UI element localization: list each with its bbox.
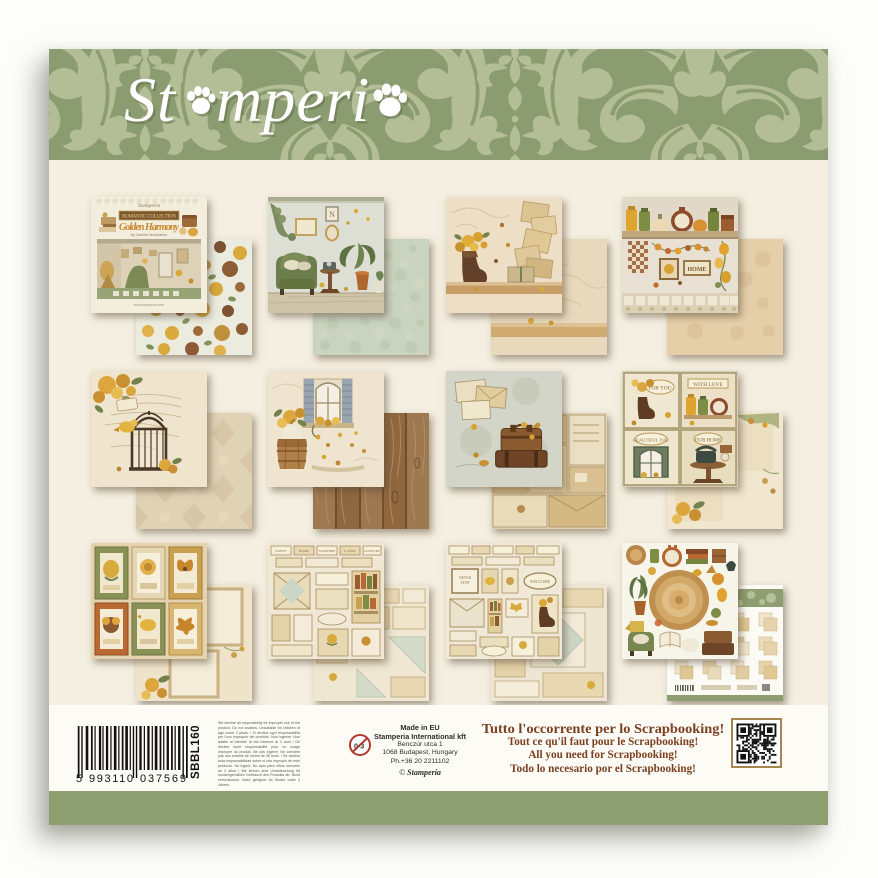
svg-text:www.stamperia.com: www.stamperia.com (134, 303, 165, 307)
svg-text:ROMANTIC COLLECTION: ROMANTIC COLLECTION (122, 214, 176, 220)
svg-text:WELCOME: WELCOME (530, 579, 551, 584)
svg-text:SUNSHINE: SUNSHINE (319, 549, 336, 553)
svg-text:5: 5 (76, 773, 82, 785)
svg-text:COUNTRY: COUNTRY (364, 549, 381, 553)
svg-text:E ASER: E ASER (344, 549, 356, 553)
svg-text:HOME: HOME (688, 267, 707, 273)
svg-text:Golden Harmony: Golden Harmony (119, 222, 180, 233)
svg-text:mperi: mperi (216, 64, 370, 135)
svg-text:N: N (329, 210, 335, 219)
svg-text:HOME: HOME (299, 549, 309, 553)
svg-text:OUR HOME: OUR HOME (695, 439, 722, 444)
svg-text:SWEET: SWEET (275, 549, 287, 553)
svg-text:St: St (124, 64, 177, 135)
svg-text:by Camilla Vecchiarino: by Camilla Vecchiarino (131, 233, 167, 237)
svg-text:SBBL160: SBBL160 (190, 725, 202, 779)
svg-text:Stamperia: Stamperia (138, 203, 161, 209)
svg-text:WITH LOVE: WITH LOVE (693, 382, 723, 388)
svg-text:BEAUTIFUL DAY: BEAUTIFUL DAY (633, 438, 670, 443)
svg-text:993110: 993110 (89, 773, 133, 785)
svg-text:037569: 037569 (140, 773, 186, 785)
svg-text:STOP: STOP (461, 581, 470, 585)
svg-text:NEVER: NEVER (459, 576, 472, 580)
